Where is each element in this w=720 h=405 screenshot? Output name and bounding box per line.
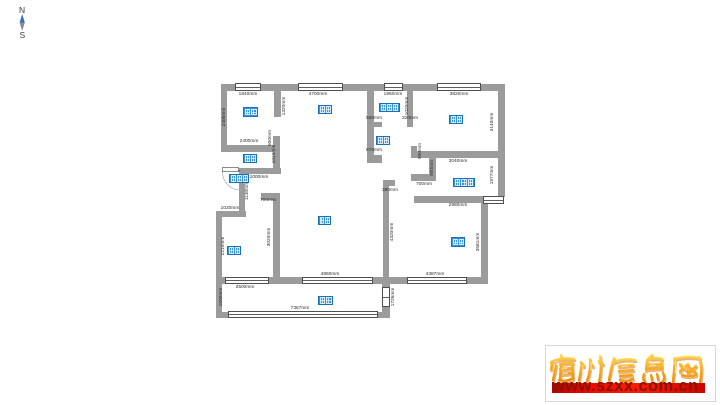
svg-text:N: N [19, 5, 25, 15]
svg-text:S: S [20, 30, 26, 40]
